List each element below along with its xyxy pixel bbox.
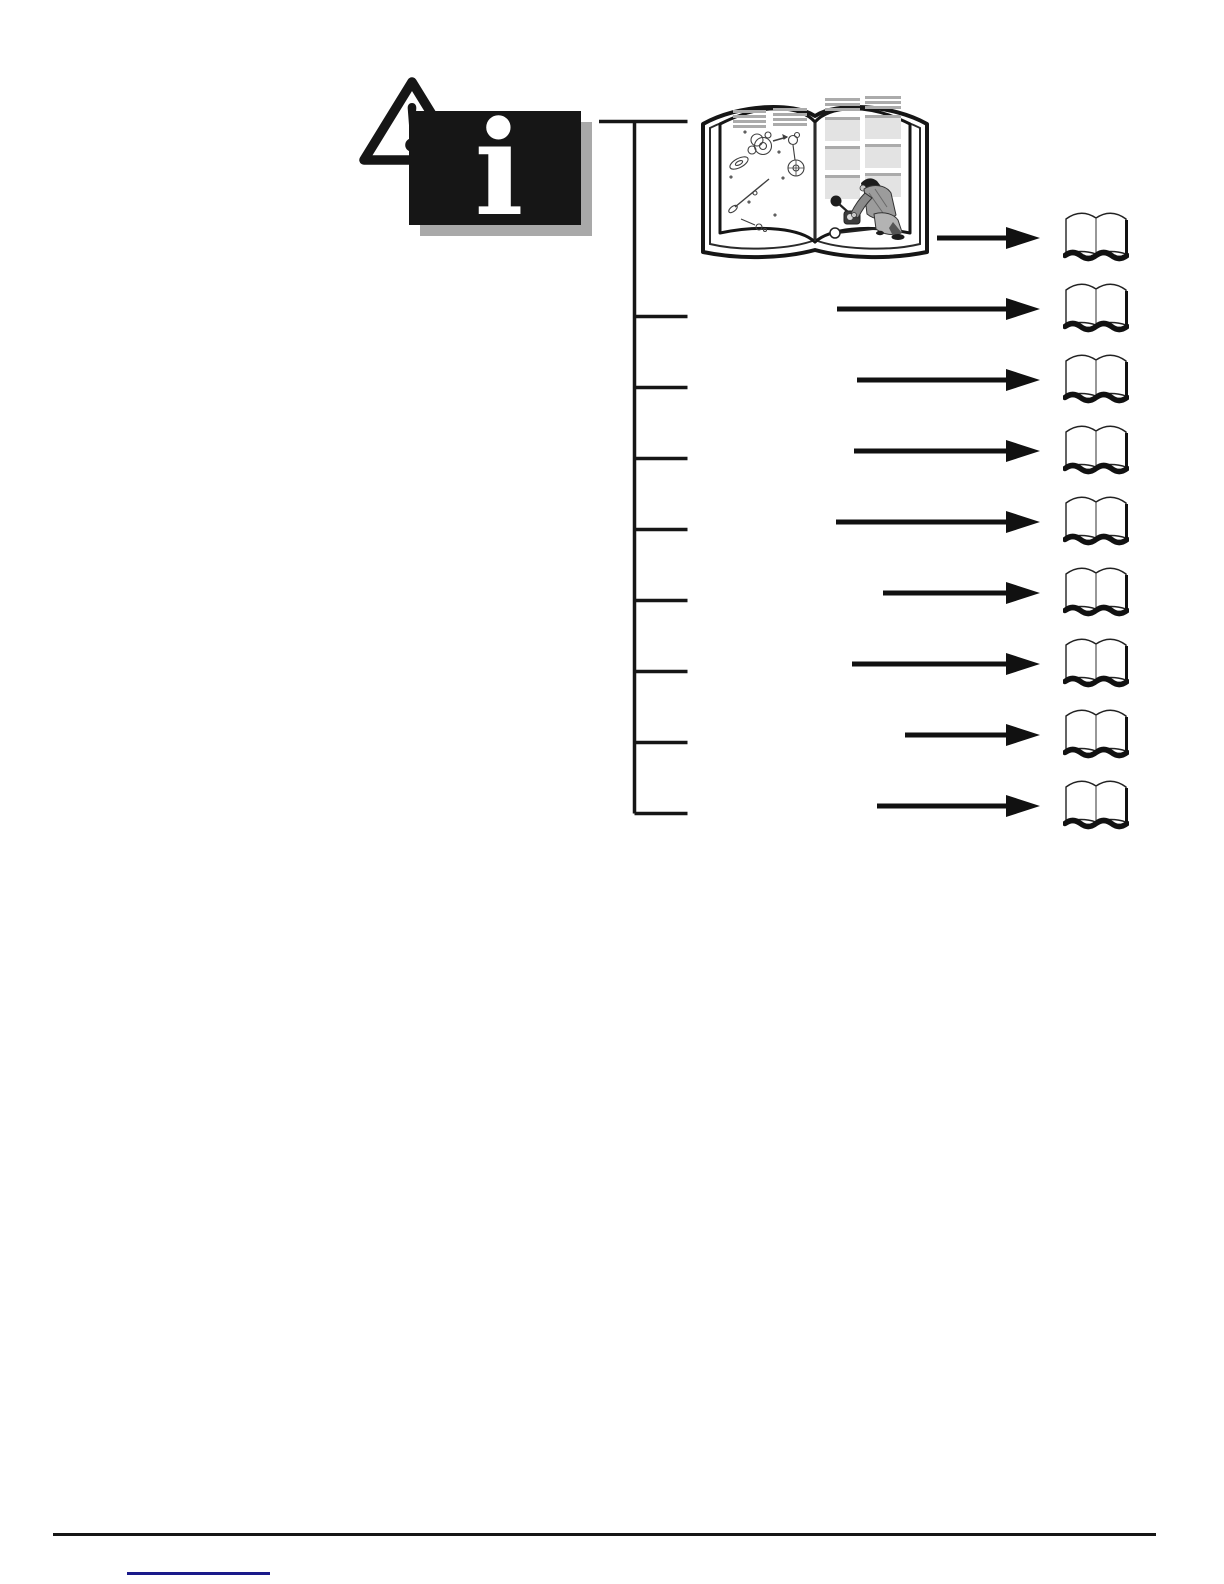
open-book-icon [1063,278,1129,336]
right-arrow-icon [937,225,1040,251]
open-book-icon [1063,775,1129,833]
right-arrow-icon [905,722,1040,748]
open-book-icon [1063,207,1129,265]
open-book-icon [1063,562,1129,620]
right-arrow-icon [854,438,1040,464]
right-arrow-icon [837,296,1040,322]
manual-document-page: i [0,0,1224,1584]
right-arrow-icon [852,651,1040,677]
open-book-icon [1063,491,1129,549]
open-book-icon [1063,633,1129,691]
open-book-icon [1063,704,1129,762]
footer-divider [53,1533,1156,1536]
footer-link-underline[interactable] [127,1572,270,1575]
right-arrow-icon [883,580,1040,606]
open-book-icon [1063,420,1129,478]
tree-connector-lines [0,0,1224,1584]
info-glyph: i [474,111,523,225]
info-box-icon: i [409,111,581,225]
right-arrow-icon [877,793,1040,819]
open-book-icon [1063,349,1129,407]
right-arrow-icon [857,367,1040,393]
open-service-manual-illustration [697,80,933,266]
right-arrow-icon [836,509,1040,535]
